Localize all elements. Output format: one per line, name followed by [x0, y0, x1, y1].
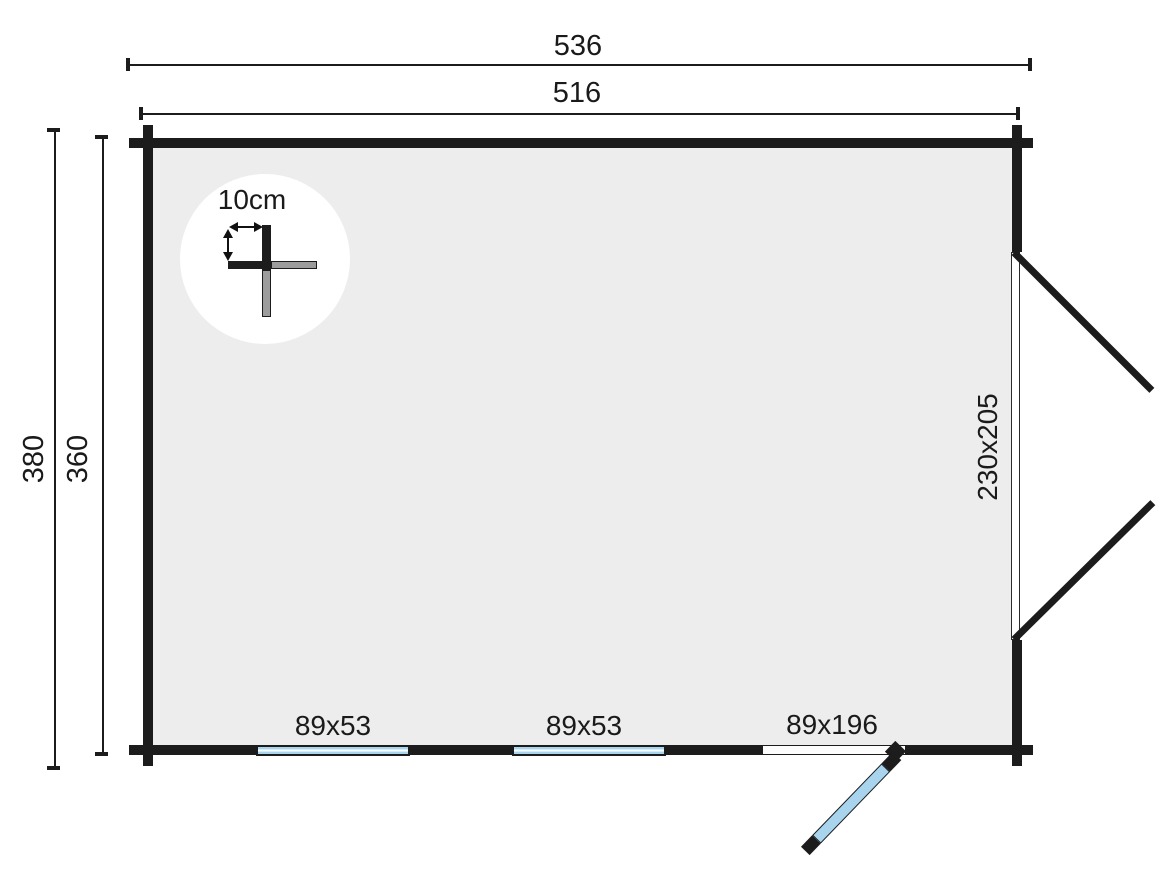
- double-door-frame: [1011, 252, 1020, 640]
- double-door-size-label: 230x205: [973, 387, 1003, 507]
- floor-plan: 10cm 536 516 380 360 230x205 89x53 89: [0, 0, 1170, 878]
- dim-tick: [1028, 58, 1032, 71]
- dim-tick: [1016, 107, 1020, 120]
- wall-thickness-label: 10cm: [202, 185, 302, 215]
- dim-tick: [95, 135, 108, 139]
- outer-width-label: 536: [528, 31, 628, 61]
- dim-tick: [47, 128, 60, 132]
- height-arrow-icon: [222, 229, 234, 261]
- detail-log-horizontal-gray: [271, 261, 317, 269]
- front-door-size-label: 89x196: [772, 710, 892, 740]
- width-arrow-icon: [229, 221, 263, 233]
- outer-height-label: 380: [19, 409, 49, 509]
- door-leaf-panel: [812, 763, 890, 843]
- front-door-leaf: [801, 752, 901, 855]
- double-door-leaf-top: [1012, 250, 1155, 393]
- arrow-head-up: [223, 229, 233, 238]
- window-middle: [512, 745, 666, 756]
- arrow-head-right: [254, 222, 263, 232]
- dim-tick: [126, 58, 130, 71]
- dim-tick: [139, 107, 143, 120]
- front-door-opening: [762, 745, 906, 755]
- window-left: [256, 745, 410, 756]
- detail-log-vertical-gray: [262, 270, 271, 317]
- inner-height-label: 360: [63, 409, 93, 509]
- wall-right-upper: [1012, 125, 1022, 252]
- detail-log-horizontal-dark: [228, 261, 272, 269]
- window-middle-size-label: 89x53: [534, 711, 634, 741]
- dim-tick: [47, 766, 60, 770]
- window-left-size-label: 89x53: [283, 711, 383, 741]
- inner-height-dimension-line: [102, 137, 104, 755]
- wall-right-lower: [1012, 640, 1022, 766]
- arrow-head-down: [223, 252, 233, 261]
- inner-width-label: 516: [527, 78, 627, 108]
- inner-width-dimension-line: [141, 113, 1019, 115]
- double-door-leaf-bottom: [1012, 500, 1156, 642]
- dim-tick: [95, 752, 108, 756]
- outer-width-dimension-line: [128, 64, 1031, 66]
- outer-height-dimension-line: [54, 130, 56, 769]
- wall-left: [143, 125, 153, 766]
- wall-top: [129, 138, 1033, 148]
